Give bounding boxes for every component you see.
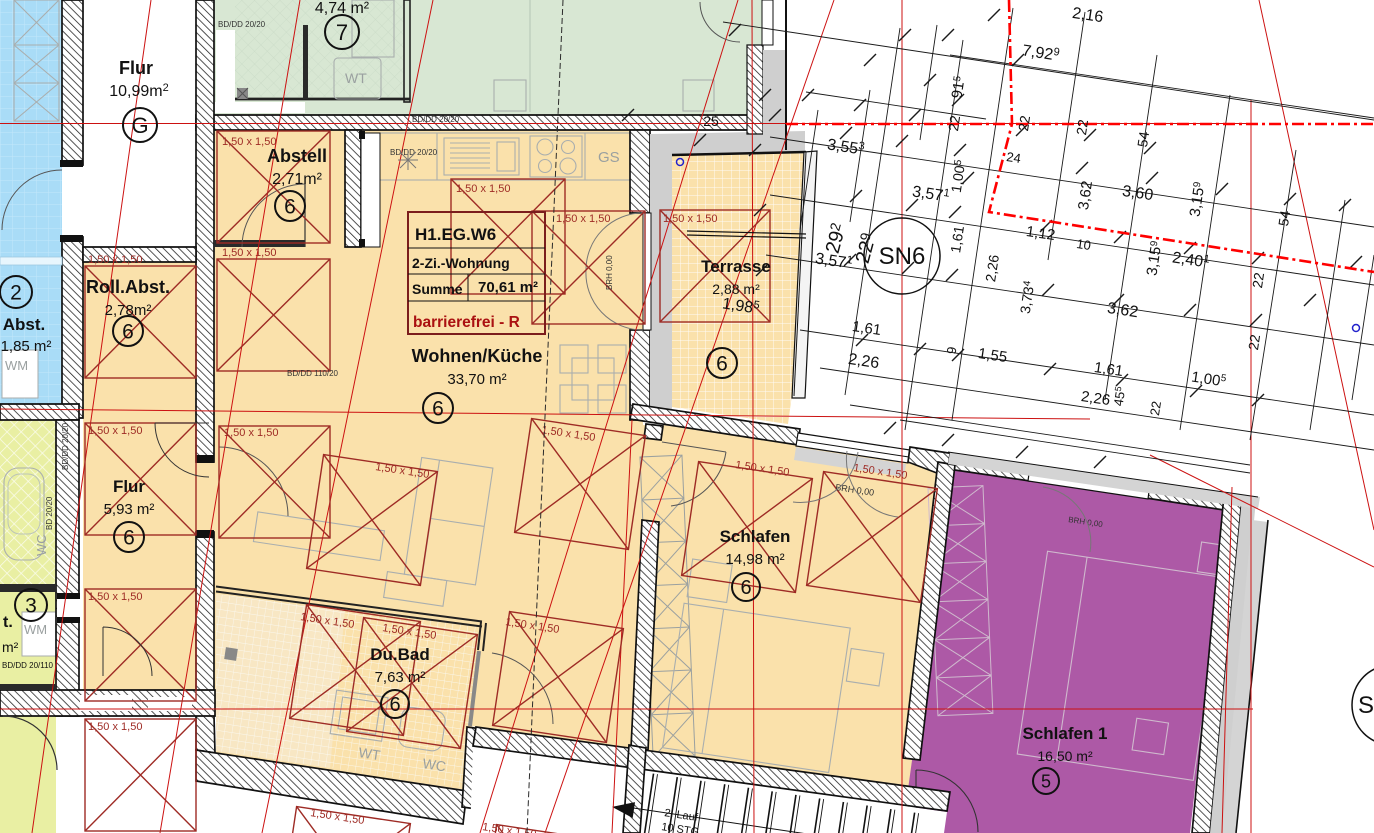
svg-text:1,50 x 1,50: 1,50 x 1,50 — [663, 213, 717, 225]
svg-text:7,63 m²: 7,63 m² — [375, 669, 426, 686]
svg-text:WC: WC — [34, 534, 49, 556]
svg-text:GS: GS — [598, 149, 620, 166]
svg-text:6: 6 — [284, 196, 296, 219]
svg-text:1,50 x 1,50: 1,50 x 1,50 — [88, 254, 142, 266]
svg-text:Flur: Flur — [113, 477, 145, 496]
svg-text:Wohnen/Küche: Wohnen/Küche — [412, 346, 543, 366]
svg-text:BD/DD 20/20: BD/DD 20/20 — [61, 422, 70, 470]
svg-text:Schlafen 1: Schlafen 1 — [1022, 724, 1107, 743]
svg-text:Schlafen: Schlafen — [720, 527, 791, 546]
svg-text:2,71m²: 2,71m² — [272, 171, 322, 188]
svg-text:S: S — [1358, 692, 1374, 719]
svg-text:24: 24 — [1005, 149, 1022, 166]
svg-text:2: 2 — [10, 282, 22, 305]
svg-text:22: 22 — [1015, 114, 1033, 132]
svg-text:10: 10 — [1075, 236, 1092, 253]
svg-text:BD 20/20: BD 20/20 — [45, 496, 54, 530]
svg-text:70,61 m²: 70,61 m² — [478, 279, 538, 296]
svg-text:Roll.Abst.: Roll.Abst. — [86, 277, 170, 297]
svg-text:m²: m² — [2, 639, 19, 655]
svg-text:Abstell: Abstell — [267, 146, 327, 166]
svg-text:5,93 m²: 5,93 m² — [104, 501, 155, 518]
svg-text:BD/DD 20/20: BD/DD 20/20 — [390, 148, 438, 157]
svg-text:1,50 x 1,50: 1,50 x 1,50 — [224, 427, 278, 439]
svg-text:2-Zi.-Wohnung: 2-Zi.-Wohnung — [412, 255, 510, 271]
svg-text:H1.EG.W6: H1.EG.W6 — [415, 225, 496, 244]
svg-text:22: 22 — [1249, 271, 1267, 289]
svg-text:6: 6 — [716, 353, 728, 376]
svg-text:BRH 0,00: BRH 0,00 — [605, 255, 614, 290]
svg-text:1,50 x 1,50: 1,50 x 1,50 — [88, 591, 142, 603]
svg-text:Flur: Flur — [119, 58, 153, 78]
svg-text:54: 54 — [1134, 130, 1152, 148]
svg-text:3: 3 — [25, 595, 37, 618]
svg-text:SN6: SN6 — [879, 243, 926, 270]
svg-text:1,85 m²: 1,85 m² — [1, 338, 52, 355]
svg-text:Abst.: Abst. — [3, 315, 46, 334]
svg-text:10,99m2: 10,99m2 — [109, 82, 169, 100]
svg-text:WM: WM — [5, 358, 28, 373]
svg-text:6: 6 — [122, 321, 134, 344]
svg-text:7: 7 — [336, 20, 348, 45]
svg-text:22: 22 — [945, 114, 963, 132]
svg-text:5: 5 — [1041, 771, 1051, 791]
svg-text:WM: WM — [24, 622, 47, 637]
svg-text:1,50 x 1,50: 1,50 x 1,50 — [556, 213, 610, 225]
svg-text:6: 6 — [432, 398, 444, 421]
svg-text:t.: t. — [3, 614, 13, 631]
svg-text:14,98 m²: 14,98 m² — [725, 551, 784, 568]
svg-text:54: 54 — [1275, 209, 1293, 227]
svg-text:22: 22 — [1147, 400, 1164, 417]
svg-text:WT: WT — [358, 744, 382, 763]
svg-text:BD/DD 20/20: BD/DD 20/20 — [412, 115, 460, 124]
svg-text:Summe: Summe — [412, 281, 463, 297]
svg-text:Du.Bad: Du.Bad — [370, 645, 430, 664]
svg-text:WT: WT — [345, 70, 367, 86]
svg-text:25: 25 — [703, 113, 719, 129]
svg-text:1,50 x 1,50: 1,50 x 1,50 — [88, 425, 142, 437]
svg-text:BD/DD 20/20: BD/DD 20/20 — [218, 20, 266, 29]
svg-text:6: 6 — [389, 694, 400, 716]
svg-text:G: G — [131, 113, 148, 138]
svg-text:22: 22 — [1073, 118, 1091, 136]
svg-text:barrierefrei - R: barrierefrei - R — [413, 314, 520, 331]
svg-text:6: 6 — [123, 527, 135, 550]
svg-text:33,70 m²: 33,70 m² — [447, 371, 506, 388]
svg-text:1,50 x 1,50: 1,50 x 1,50 — [222, 247, 276, 259]
svg-text:1,50 x 1,50: 1,50 x 1,50 — [88, 721, 142, 733]
svg-text:6: 6 — [740, 577, 751, 599]
svg-text:16,50 m²: 16,50 m² — [1037, 748, 1093, 764]
svg-text:BD/DD 20/110: BD/DD 20/110 — [2, 661, 54, 670]
svg-text:22: 22 — [1245, 333, 1263, 351]
svg-text:WC: WC — [422, 755, 447, 774]
svg-text:2,88 m²: 2,88 m² — [712, 281, 760, 297]
svg-text:Terrasse: Terrasse — [701, 257, 771, 276]
svg-text:1,50 x 1,50: 1,50 x 1,50 — [456, 183, 510, 195]
svg-text:BD/DD 110/20: BD/DD 110/20 — [287, 369, 339, 378]
